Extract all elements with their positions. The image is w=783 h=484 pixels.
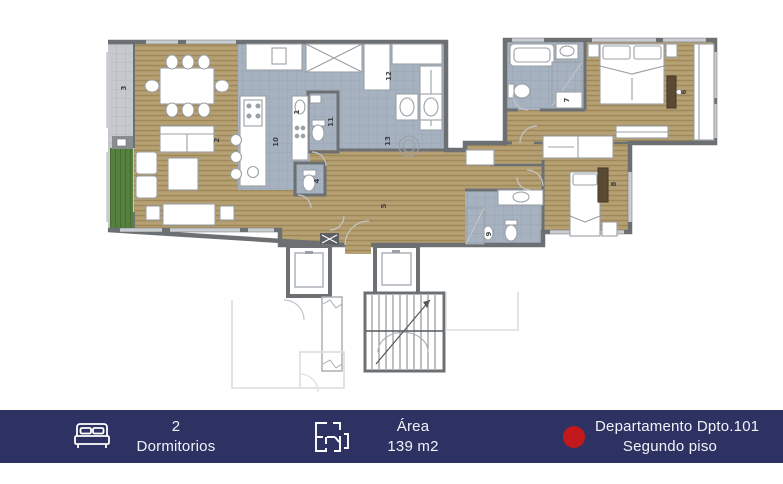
area-text: Área 139 m2 — [367, 417, 459, 455]
nightstand — [602, 222, 617, 236]
room-number: 11 — [327, 117, 335, 127]
coffee-table — [168, 158, 198, 190]
info-bar: 2 Dormitorios Área 139 m2 — [0, 410, 783, 463]
wc-sink — [310, 95, 321, 103]
toilet — [505, 225, 517, 241]
unit-text: Departamento Dpto.101 Segundo piso — [595, 417, 745, 455]
room-number: 5 — [380, 203, 388, 208]
armchair — [136, 176, 157, 198]
planter — [110, 148, 133, 230]
room-number: 4 — [313, 178, 321, 183]
stool — [231, 169, 242, 180]
bedrooms-label: Dormitorios — [128, 437, 224, 456]
room-number: 3 — [120, 85, 128, 90]
dresser — [667, 76, 676, 108]
floorplan-icon — [313, 420, 351, 454]
bedrooms-info: 2 Dormitorios — [72, 410, 224, 463]
room-number: 2 — [213, 137, 221, 142]
unit-name: Departamento Dpto.101 — [595, 417, 745, 436]
toilet — [312, 125, 324, 141]
room-number: 13 — [384, 136, 392, 146]
armchair — [136, 152, 157, 174]
sofa-2 — [163, 204, 215, 225]
dining-table — [160, 68, 214, 104]
entry-threshold — [345, 245, 371, 254]
bed-icon — [72, 420, 112, 454]
area-info: Área 139 m2 — [313, 410, 459, 463]
unit-info: Departamento Dpto.101 Segundo piso — [563, 410, 745, 463]
stool — [231, 152, 242, 163]
area-value: 139 m2 — [367, 437, 459, 456]
bedrooms-text: 2 Dormitorios — [128, 417, 224, 455]
floor-plan-svg: 1 2 3 4 5 6 7 8 9 10 11 12 13 — [0, 0, 783, 410]
room-number: 6 — [680, 89, 688, 94]
wardrobe — [694, 44, 714, 140]
room-number: 8 — [610, 181, 618, 186]
area-title: Área — [367, 417, 459, 436]
nightstand — [666, 44, 677, 57]
stool — [231, 135, 242, 146]
room-number: 12 — [385, 71, 393, 81]
room-number: 9 — [485, 231, 493, 236]
corridor — [322, 297, 342, 371]
room-number: 10 — [272, 137, 280, 147]
room-number: 1 — [293, 109, 301, 114]
unit-marker-dot — [563, 426, 585, 448]
wall-counter — [292, 96, 308, 160]
bathtub — [510, 44, 554, 66]
tall-cabinet — [364, 44, 390, 90]
apartment-floorplan-page: 1 2 3 4 5 6 7 8 9 10 11 12 13 — [0, 0, 783, 484]
desk — [598, 168, 608, 202]
toilet — [514, 84, 530, 98]
bedrooms-count: 2 — [128, 417, 224, 436]
closet — [466, 150, 494, 165]
unit-floor: Segundo piso — [595, 437, 745, 456]
room-number: 7 — [563, 97, 571, 102]
nightstand — [588, 44, 599, 57]
floor-plan: 1 2 3 4 5 6 7 8 9 10 11 12 13 — [0, 0, 783, 410]
